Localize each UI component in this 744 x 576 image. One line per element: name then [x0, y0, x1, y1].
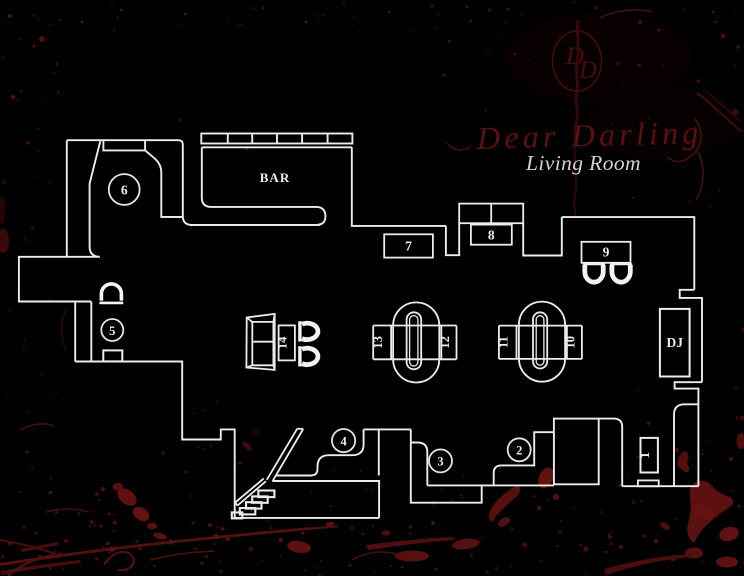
svg-text:D: D [578, 57, 597, 84]
svg-text:12: 12 [438, 336, 452, 349]
svg-text:5: 5 [109, 324, 115, 338]
svg-text:9: 9 [603, 245, 610, 260]
svg-text:13: 13 [371, 336, 385, 349]
svg-text:4: 4 [340, 434, 347, 448]
svg-text:6: 6 [121, 182, 128, 197]
svg-text:8: 8 [488, 227, 495, 242]
svg-text:14: 14 [276, 336, 290, 349]
svg-text:1: 1 [637, 452, 652, 459]
svg-text:3: 3 [437, 455, 443, 469]
svg-text:10: 10 [563, 336, 577, 349]
svg-text:Dear Darling: Dear Darling [476, 114, 703, 156]
svg-text:2: 2 [516, 444, 522, 458]
svg-text:11: 11 [497, 336, 511, 348]
svg-text:DJ: DJ [667, 335, 684, 350]
svg-text:7: 7 [405, 239, 412, 254]
svg-text:BAR: BAR [260, 170, 290, 185]
svg-text:Living Room: Living Room [525, 151, 641, 175]
